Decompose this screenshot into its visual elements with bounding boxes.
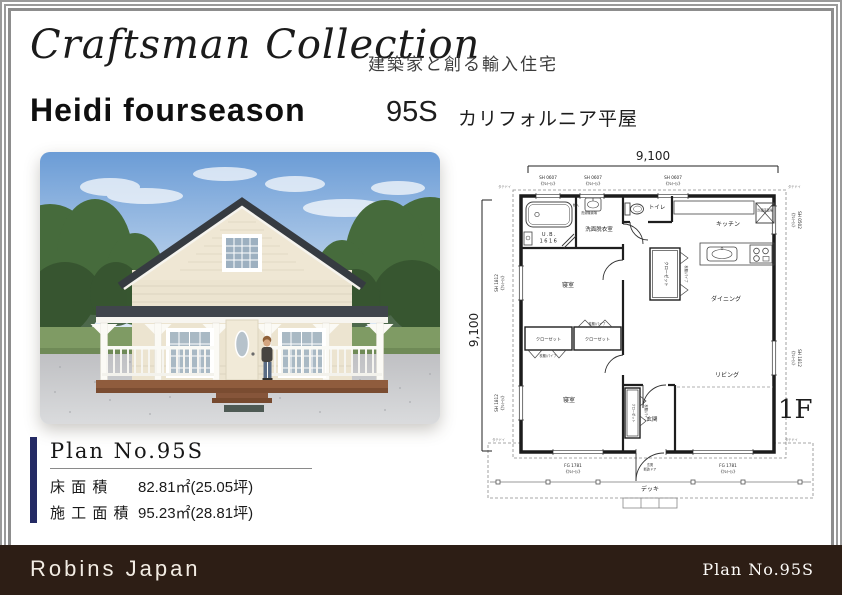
porch-roof (96, 306, 388, 317)
area-rows: 床 面 積 82.81㎡(25.05坪) 施 工 面 積 95.23㎡(28.8… (50, 476, 312, 523)
step-1 (216, 393, 268, 398)
room-label-closet-1: クローゼット (536, 336, 561, 343)
svg-text:SH 1812: SH 1812 (494, 394, 499, 412)
footer-bar: Robins Japan Plan No.95S (0, 545, 842, 595)
model-subtitle: カリフォルニア平屋 (458, 104, 638, 131)
construction-area-value: 95.23㎡(28.81坪) (138, 502, 253, 523)
plan-number-title: Plan No.95S (50, 437, 312, 469)
svg-text:《ｸﾚﾄｲｼ》: 《ｸﾚﾄｲｼ》 (791, 211, 796, 230)
dim-width-label: 9,100 (636, 149, 670, 163)
svg-text:《ｸﾚﾄｲｼ》: 《ｸﾚﾄｲｼ》 (500, 274, 505, 293)
floor-label: 1F (778, 395, 813, 425)
step-2 (212, 398, 272, 403)
shelf-note: 枕棚/パイプ (644, 404, 649, 422)
floor-area-row: 床 面 積 82.81㎡(25.05坪) (50, 476, 312, 497)
svg-text:SH 0502: SH 0502 (797, 211, 802, 229)
window-glass-note: 《ｸﾚﾄｲｼ》 (664, 181, 683, 186)
window-label-left-1: SH 1812 《ｸﾚﾄｲｼ》 (494, 274, 505, 293)
room-label-toilet: トイレ (649, 205, 666, 211)
svg-text:SH 1812: SH 1812 (494, 274, 499, 292)
shelf-note: 枕棚/パイプ (539, 353, 557, 358)
room-label-kitchen: キッチン (716, 221, 740, 228)
window-label-right-1: SH 0502 《ｸﾚﾄｲｼ》 (791, 211, 802, 230)
downspout-note: タテドイ (492, 437, 505, 442)
svg-text:《ｸﾚﾄｲｼ》: 《ｸﾚﾄｲｼ》 (500, 394, 505, 413)
entry-door-note: 断熱ドア (644, 467, 657, 472)
window-glass-note: 《ｸﾚﾄｲｼ》 (564, 469, 583, 474)
brochure-page: { "header": { "brand_script": "Craftsman… (0, 0, 842, 595)
deck-steps (623, 498, 677, 508)
accent-bar (30, 437, 37, 523)
room-label-closet-2: クローゼット (585, 336, 610, 343)
brand-tagline: 建築家と創る輸入住宅 (368, 50, 558, 75)
dimension-top (528, 166, 778, 173)
floor-area-value: 82.81㎡(25.05坪) (138, 476, 253, 497)
construction-area-row: 施 工 面 積 95.23㎡(28.81坪) (50, 502, 312, 523)
window-label: FG 1781 (719, 463, 737, 468)
person-jacket (262, 347, 273, 362)
person-leg (264, 362, 268, 378)
door-handle (251, 352, 254, 355)
window-label: FG 1781 (564, 463, 582, 468)
room-label-ub: U.B. (542, 232, 556, 238)
label-storage: 物入 (573, 203, 580, 208)
shelf-note: 枕棚/パイプ (684, 265, 689, 283)
front-door (226, 320, 258, 380)
room-label-dining: ダイニング (711, 295, 741, 303)
window-glass-note: 《ｸﾚﾄｲｼ》 (584, 181, 603, 186)
window-glass-note: 《ｸﾚﾄｲｼ》 (539, 181, 558, 186)
window-label: SH 0607 (664, 175, 682, 180)
room-label-ub-size: 1616 (540, 239, 559, 245)
window-glass-note: 《ｸﾚﾄｲｼ》 (719, 469, 738, 474)
window-label-right-2: SH 1812 《ｸﾚﾄｲｼ》 (791, 349, 802, 368)
shelf-note: 枕棚/パイプ (588, 321, 606, 326)
model-name: Heidi fourseason (30, 92, 306, 129)
svg-text:SH 1812: SH 1812 (797, 349, 802, 367)
exterior-photo (40, 152, 440, 424)
downspout-note: タテドイ (498, 184, 511, 189)
door-mat (224, 405, 264, 412)
downspout-note: タテドイ (785, 437, 798, 442)
room-label-closet-center: クローゼット (663, 261, 670, 286)
room-label-bedroom-2: 寝室 (563, 396, 575, 404)
person-leg (268, 362, 272, 378)
floor-plan-drawing: 9,100 9,100 SH 0607 《ｸﾚﾄｲｼ》 SH 0607 《ｸﾚﾄ… (468, 148, 820, 528)
svg-text:《ｸﾚﾄｲｼ》: 《ｸﾚﾄｲｼ》 (791, 349, 796, 368)
footer-plan-number: Plan No.95S (702, 560, 814, 579)
windows-bottom (553, 449, 753, 455)
dimension-left (482, 200, 492, 451)
attic-window (222, 234, 262, 272)
exterior-illustration (40, 152, 440, 424)
plan-info: Plan No.95S 床 面 積 82.81㎡(25.05坪) 施 工 面 積… (30, 437, 312, 528)
room-label-washroom: 洗面脱衣室 (585, 225, 613, 233)
room-label-living: リビング (715, 371, 739, 379)
room-label-closet-entry: クローゼット (632, 403, 637, 422)
floor-area-label: 床 面 積 (50, 476, 138, 497)
downspout-note: タテドイ (788, 184, 801, 189)
entry-door-note: 玄関 (647, 462, 653, 467)
label-fridge: 冷蔵庫置場 (757, 208, 774, 213)
model-code: 95S (386, 96, 438, 129)
person-head (263, 339, 270, 346)
floor-plan: 9,100 9,100 SH 0607 《ｸﾚﾄｲｼ》 SH 0607 《ｸﾚﾄ… (468, 148, 820, 528)
company-name: Robins Japan (30, 556, 201, 582)
dim-height-label: 9,100 (468, 313, 481, 347)
label-laundry: 洗濯機置場 (581, 210, 598, 215)
window-label: SH 0607 (539, 175, 557, 180)
window-label: SH 0607 (584, 175, 602, 180)
room-label-bedroom-1: 寝室 (562, 281, 574, 289)
construction-area-label: 施 工 面 積 (50, 502, 138, 523)
room-label-deck: デッキ (641, 485, 659, 493)
window-label-left-2: SH 1812 《ｸﾚﾄｲｼ》 (494, 394, 505, 413)
